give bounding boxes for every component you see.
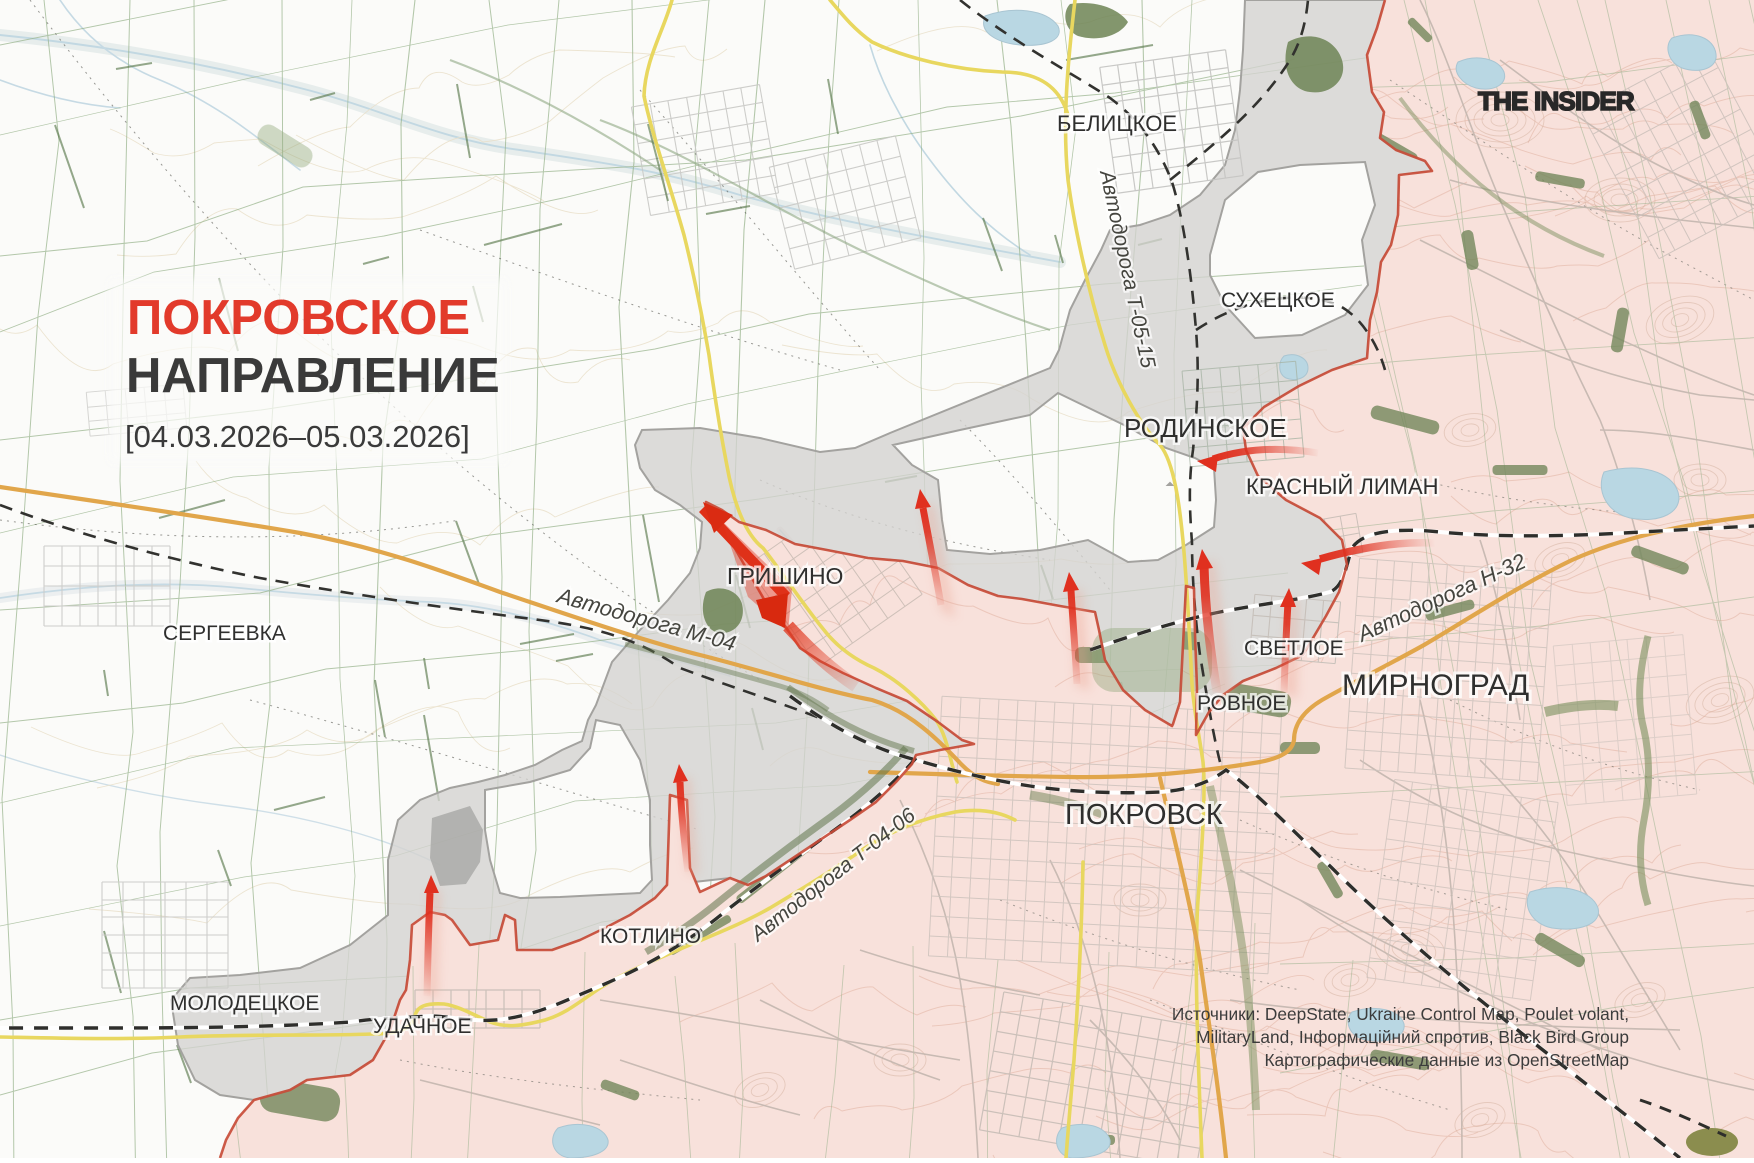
svg-text:ПОКРОВСК: ПОКРОВСК [1065,799,1223,831]
svg-text:НАПРАВЛЕНИЕ: НАПРАВЛЕНИЕ [126,349,500,403]
svg-text:РОВНОЕ: РОВНОЕ [1197,692,1286,715]
svg-text:БЕЛИЦКОЕ: БЕЛИЦКОЕ [1057,111,1177,136]
svg-text:СЕРГЕЕВКА: СЕРГЕЕВКА [163,622,286,645]
svg-text:[04.03.2026–05.03.2026]: [04.03.2026–05.03.2026] [125,419,470,454]
svg-text:СВЕТЛОЕ: СВЕТЛОЕ [1244,637,1344,660]
svg-text:THE INSIDER: THE INSIDER [1478,86,1635,116]
svg-text:ГРИШИНО: ГРИШИНО [727,563,843,589]
svg-text:УДАЧНОЕ: УДАЧНОЕ [373,1015,472,1038]
svg-text:MilitaryLand, Інформаційний сп: MilitaryLand, Інформаційний спротив, Bla… [1196,1027,1629,1047]
svg-text:КРАСНЫЙ ЛИМАН: КРАСНЫЙ ЛИМАН [1246,474,1439,499]
svg-text:МИРНОГРАД: МИРНОГРАД [1342,669,1529,702]
svg-text:ПОКРОВСКОЕ: ПОКРОВСКОЕ [127,291,470,345]
svg-text:СУХЕЦКОЕ: СУХЕЦКОЕ [1221,289,1335,312]
svg-text:Картографические данные из Ope: Картографические данные из OpenStreetMap [1264,1050,1629,1070]
svg-text:МОЛОДЕЦКОЕ: МОЛОДЕЦКОЕ [170,992,319,1015]
svg-text:Источники: DeepState, Ukraine: Источники: DeepState, Ukraine Control Ma… [1172,1004,1629,1024]
svg-text:КОТЛИНО: КОТЛИНО [600,925,701,948]
svg-text:РОДИНСКОЕ: РОДИНСКОЕ [1124,413,1287,443]
